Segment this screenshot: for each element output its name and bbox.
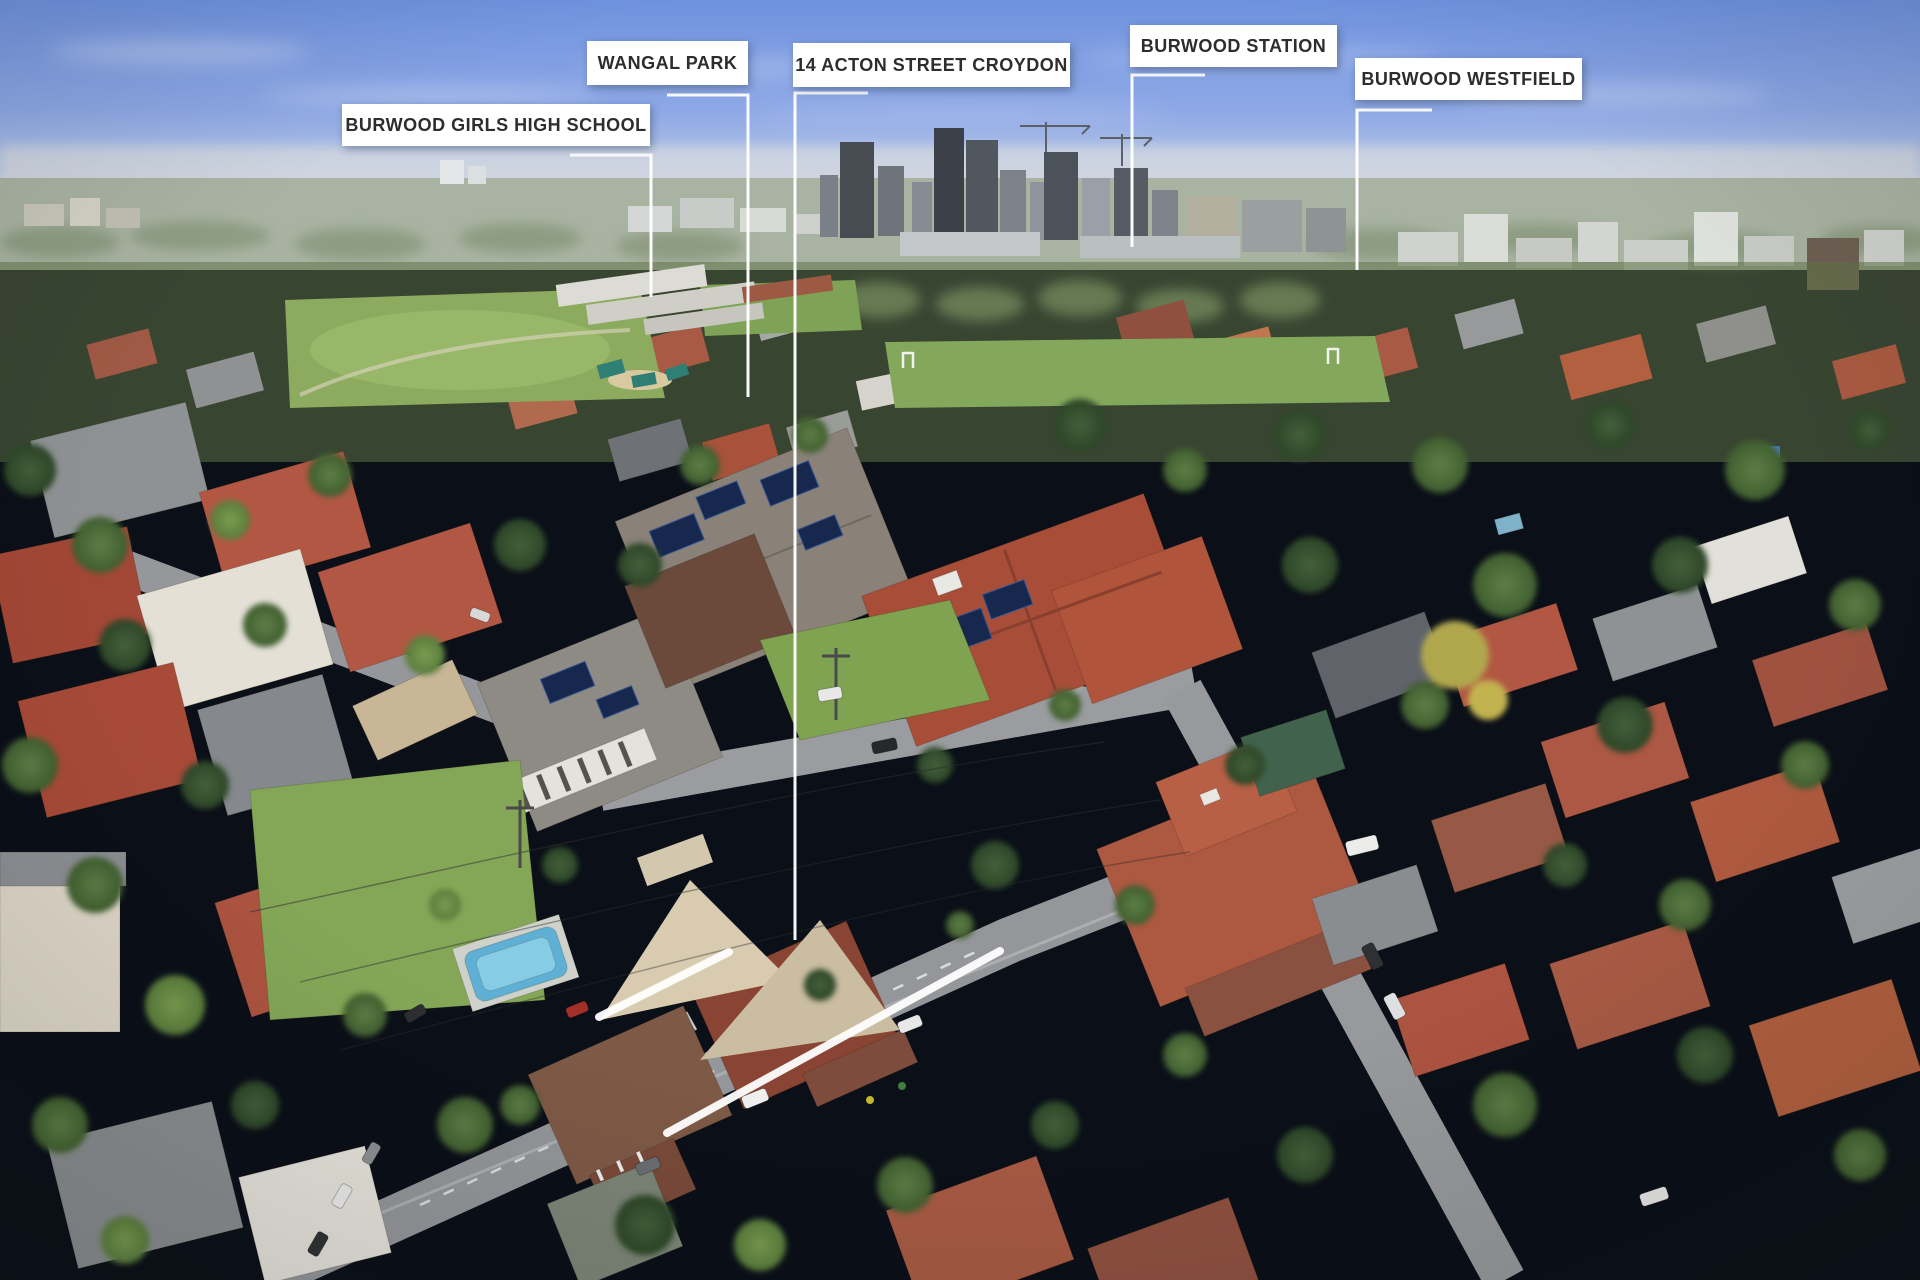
vignette: [0, 0, 1920, 1280]
aerial-photo: BURWOOD GIRLS HIGH SCHOOL WANGAL PARK 14…: [0, 0, 1920, 1280]
label-14-acton-street-croydon: 14 ACTON STREET CROYDON: [793, 43, 1070, 87]
label-burwood-girls-high-school: BURWOOD GIRLS HIGH SCHOOL: [342, 104, 650, 146]
label-burwood-westfield: BURWOOD WESTFIELD: [1355, 58, 1582, 100]
label-wangal-park: WANGAL PARK: [587, 41, 748, 85]
label-burwood-station: BURWOOD STATION: [1130, 25, 1337, 67]
aerial-scene: [0, 0, 1920, 1280]
